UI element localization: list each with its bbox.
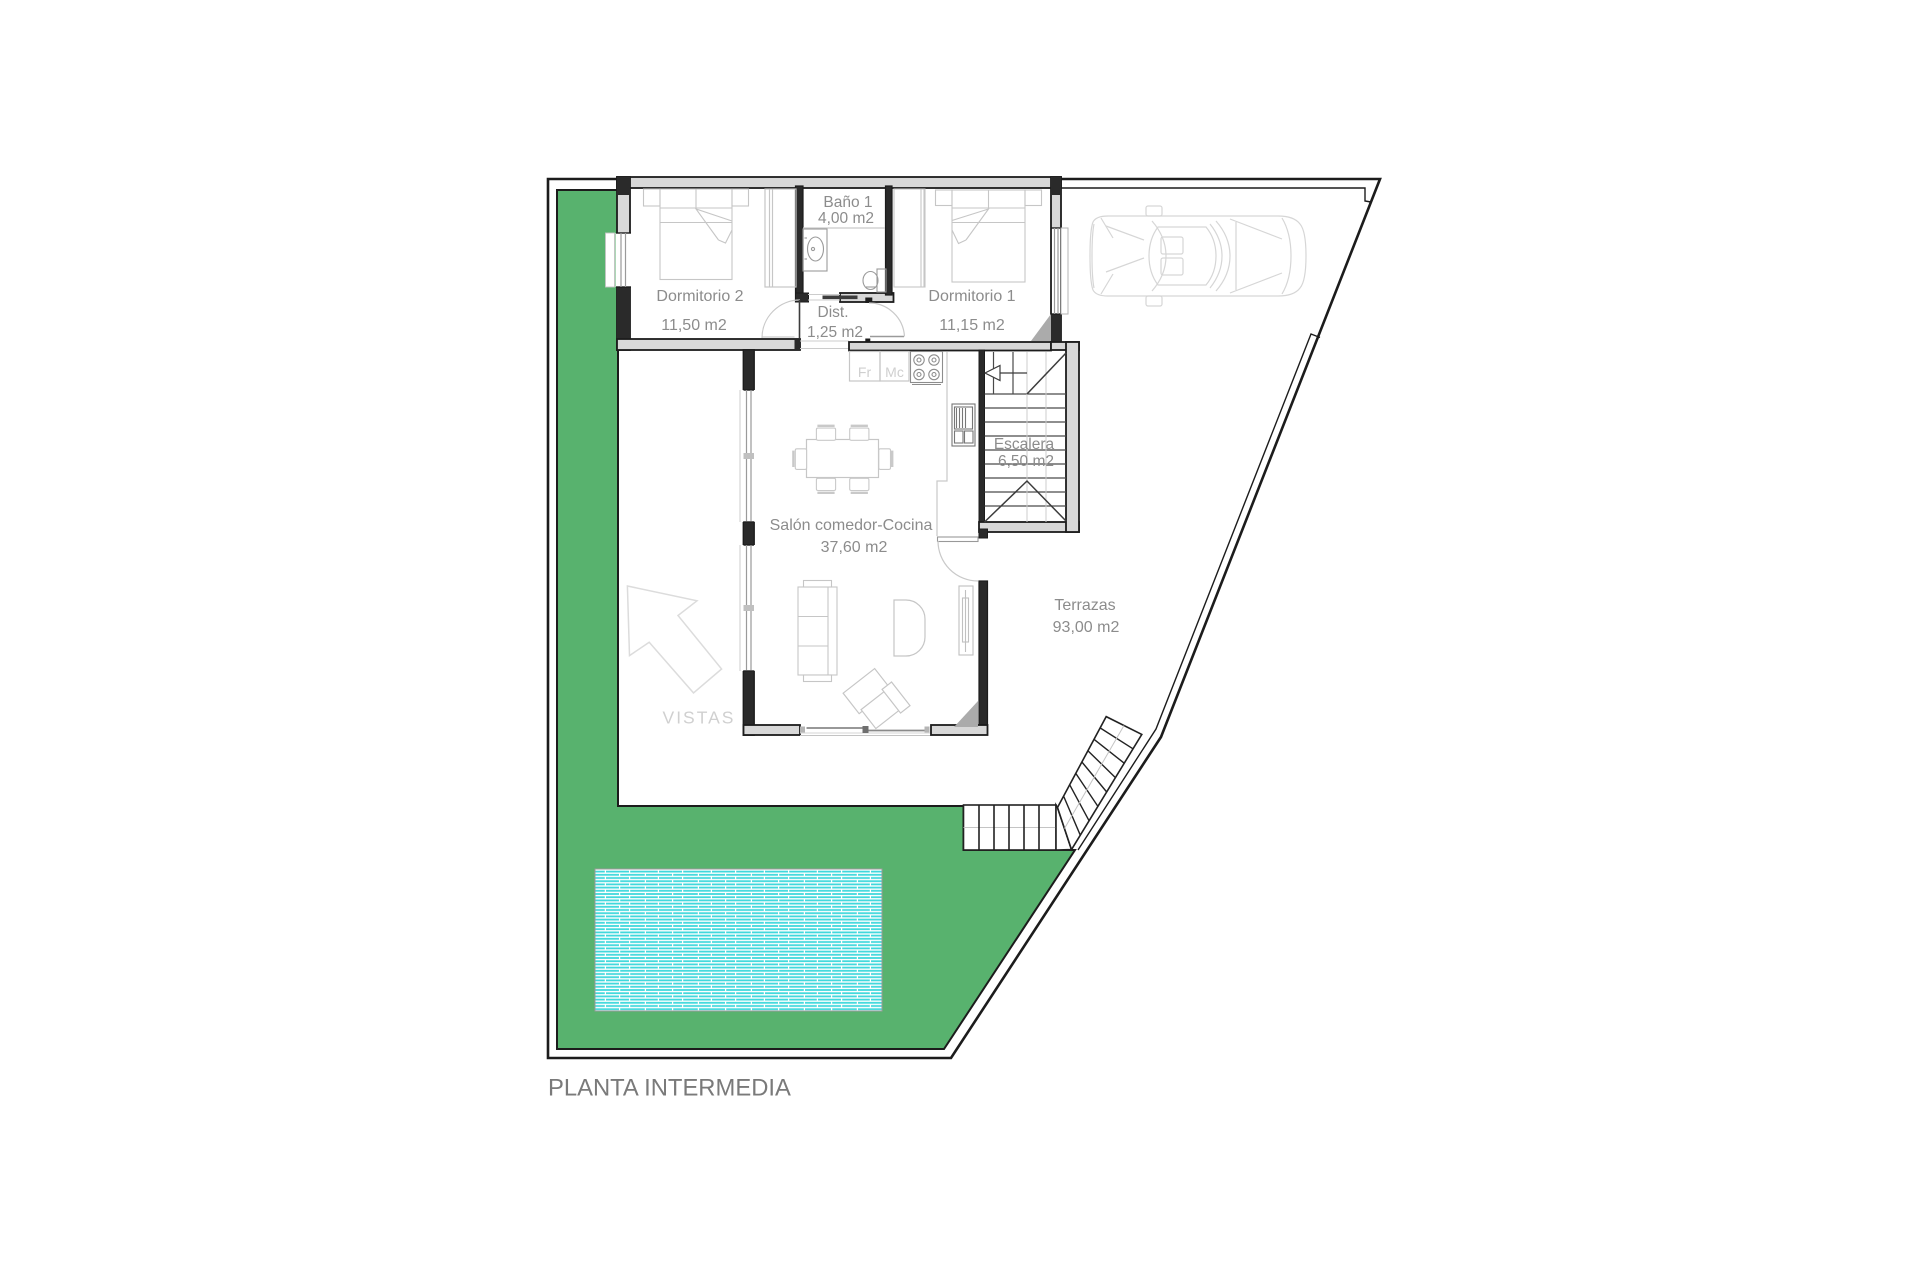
svg-text:93,00 m2: 93,00 m2 [1053, 619, 1120, 636]
svg-text:PLANTA INTERMEDIA: PLANTA INTERMEDIA [548, 1075, 791, 1102]
svg-text:VISTAS: VISTAS [663, 708, 736, 728]
svg-text:37,60 m2: 37,60 m2 [821, 539, 888, 556]
svg-text:6,50 m2: 6,50 m2 [998, 453, 1054, 470]
svg-text:Dist.: Dist. [818, 304, 849, 321]
svg-text:1,25 m2: 1,25 m2 [807, 324, 863, 341]
svg-text:Fr: Fr [858, 364, 872, 380]
svg-text:Terrazas: Terrazas [1054, 597, 1115, 614]
svg-text:11,15 m2: 11,15 m2 [939, 317, 1005, 334]
svg-text:Dormitorio 1: Dormitorio 1 [928, 288, 1015, 305]
svg-text:Salón comedor-Cocina: Salón comedor-Cocina [770, 517, 933, 534]
svg-text:Escalera: Escalera [994, 436, 1055, 453]
svg-text:Baño 1: Baño 1 [823, 194, 872, 211]
svg-text:Mc: Mc [885, 364, 904, 380]
svg-text:Dormitorio 2: Dormitorio 2 [656, 288, 743, 305]
svg-text:4,00 m2: 4,00 m2 [818, 210, 874, 227]
svg-text:11,50 m2: 11,50 m2 [661, 317, 727, 334]
